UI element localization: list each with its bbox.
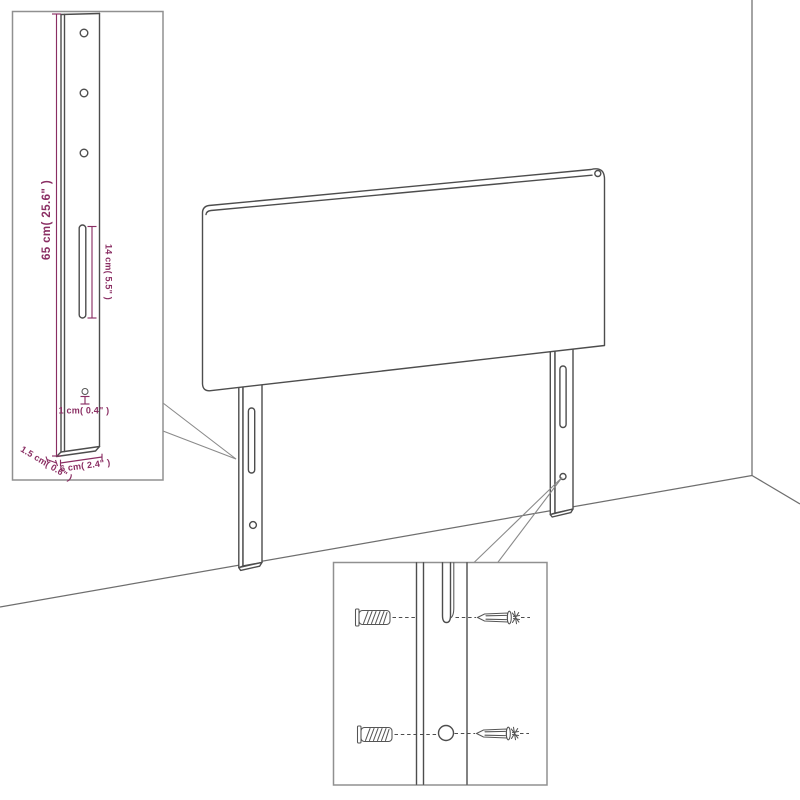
dimension-height-label: 65 cm( 25.6" ) bbox=[41, 180, 53, 260]
headboard-panel bbox=[203, 169, 605, 391]
mount-callout-leader-lines bbox=[473, 478, 562, 564]
headboard-dimension-diagram: 65 cm( 25.6" ) 14 cm( 5.5" ) 1 cm( 0.4" … bbox=[0, 0, 800, 800]
dimension-slot-label: 14 cm( 5.5" ) bbox=[104, 244, 114, 300]
diagram-canvas: 65 cm( 25.6" ) 14 cm( 5.5" ) 1 cm( 0.4" … bbox=[0, 0, 800, 800]
leg-callout-leader-lines bbox=[163, 403, 236, 459]
mount-detail-callout bbox=[334, 563, 548, 786]
headboard-left-leg bbox=[239, 383, 262, 571]
headboard-right-leg bbox=[550, 348, 573, 517]
dimension-hole-label: 1 cm( 0.4" ) bbox=[59, 406, 110, 416]
leg-detail-callout: 65 cm( 25.6" ) 14 cm( 5.5" ) 1 cm( 0.4" … bbox=[13, 12, 164, 483]
mount-detail-callout-box bbox=[334, 563, 548, 786]
floor-line-right bbox=[752, 476, 800, 505]
